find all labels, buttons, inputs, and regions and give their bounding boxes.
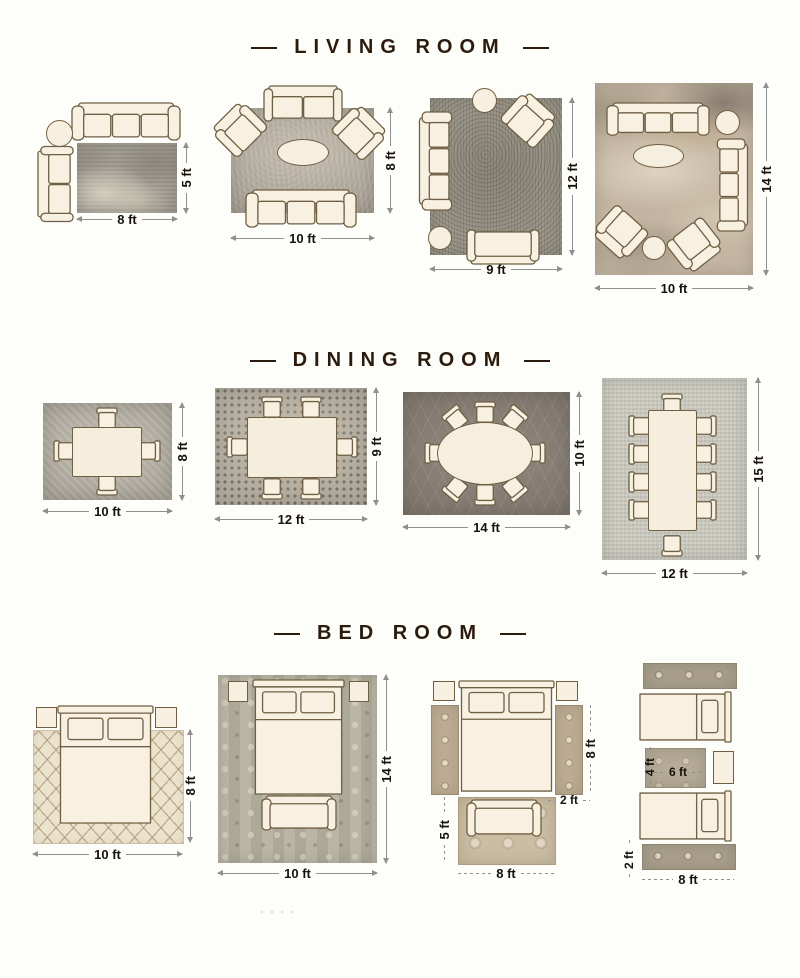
living-room-title: LIVING ROOM: [0, 36, 800, 59]
dining-chair-icon: [694, 499, 716, 521]
dining-chair-icon: [227, 436, 249, 458]
sofa-body: [419, 112, 452, 210]
sofa-body: [716, 139, 747, 231]
bed-room-title: BED ROOM: [0, 622, 800, 645]
bench-icon: [467, 229, 539, 264]
dimension-height: 14 ft: [758, 83, 774, 275]
nightstand-icon: [155, 707, 177, 728]
title-dash: [274, 633, 300, 635]
dimension-height: 12 ft: [564, 98, 580, 255]
bench-icon: [467, 800, 541, 837]
runner-rug-8x2: [643, 663, 737, 689]
dining-chair-icon: [300, 477, 322, 499]
dining-table-icon: [72, 427, 142, 477]
dining-chair-icon: [694, 471, 716, 493]
dining-chair-icon: [261, 397, 283, 419]
title-dash: [500, 633, 526, 635]
section-title-text: BED ROOM: [317, 622, 483, 645]
title-dash: [524, 360, 550, 362]
runner-rug-8x2: [642, 844, 736, 870]
sofa-icon: [607, 103, 709, 136]
dimension-width: 9 ft: [430, 262, 562, 277]
dimension-height: 8 ft: [174, 403, 190, 500]
twin-bed-icon: [640, 791, 731, 841]
bed-icon: [58, 706, 153, 824]
section-title-text: LIVING ROOM: [294, 36, 505, 59]
title-dash: [523, 47, 549, 49]
dimension-width: 10 ft: [231, 231, 374, 246]
dimension-runner-length: 8 ft: [582, 705, 598, 793]
dimension-foot-height: 5 ft: [436, 797, 452, 863]
dining-chair-icon: [261, 477, 283, 499]
sofa-icon: [72, 103, 180, 141]
dining-chair-icon: [474, 483, 496, 505]
dimension-height: 10 ft: [571, 392, 587, 515]
loveseat-body: [38, 146, 74, 221]
ottoman-icon: [642, 236, 666, 260]
nightstand-icon: [556, 681, 578, 701]
dimension-width: 10 ft: [218, 866, 377, 881]
sofa-icon: [264, 86, 342, 122]
sofa-icon: [716, 139, 747, 231]
rug-size-guide: LIVING ROOM DINING ROOM BED ROOM 8 ft 5 …: [0, 0, 800, 978]
dimension-width: 14 ft: [403, 520, 570, 535]
dimension-width: 12 ft: [602, 566, 747, 581]
dining-table-icon: [247, 417, 337, 478]
dimension-between-width: 6 ft: [654, 765, 702, 779]
title-dash: [251, 47, 277, 49]
dimension-foot-width: 8 ft: [458, 866, 554, 881]
dimension-runner-width: 2 ft: [548, 793, 590, 807]
dining-table-icon: [648, 410, 697, 531]
dimension-height: 5 ft: [178, 143, 194, 213]
twin-bed-icon: [640, 692, 731, 742]
dimension-width: 10 ft: [33, 847, 182, 862]
dining-chair-icon: [300, 397, 322, 419]
side-table-icon: [46, 120, 73, 147]
coffee-table-icon: [277, 139, 329, 166]
sofa-icon: [419, 112, 452, 210]
ottoman-icon: [428, 226, 452, 250]
dimension-width: 10 ft: [595, 281, 753, 296]
dimension-height: 15 ft: [750, 378, 766, 560]
dimension-height: 9 ft: [368, 388, 384, 505]
dimension-runner-width: 2 ft: [621, 840, 637, 871]
living-rug-8x5: [77, 143, 177, 213]
nightstand-icon: [36, 707, 57, 728]
watermark-dots: [258, 908, 298, 916]
dining-chair-icon: [474, 402, 496, 424]
dining-chair-icon: [694, 415, 716, 437]
dimension-runner-length: 8 ft: [642, 872, 734, 887]
side-table-icon: [715, 110, 740, 135]
nightstand-icon: [349, 681, 369, 702]
nightstand-icon: [228, 681, 248, 702]
dimension-height: 14 ft: [378, 675, 394, 863]
dimension-width: 8 ft: [77, 212, 177, 227]
nightstand-icon: [433, 681, 455, 701]
side-table-icon: [472, 88, 497, 113]
dimension-width: 12 ft: [215, 512, 367, 527]
runner-rug-2x8: [555, 705, 583, 795]
dining-table-icon: [437, 422, 533, 485]
bench-icon: [262, 796, 336, 831]
dining-room-title: DINING ROOM: [0, 349, 800, 372]
bed-icon: [253, 680, 344, 795]
dining-chair-icon: [694, 443, 716, 465]
sofa-icon: [246, 190, 356, 228]
nightstand-icon: [713, 751, 734, 784]
runner-rug-2x8: [431, 705, 459, 795]
dimension-width: 10 ft: [43, 504, 172, 519]
section-title-text: DINING ROOM: [293, 349, 508, 372]
loveseat-icon: [38, 146, 74, 221]
bed-icon: [459, 681, 554, 792]
dining-chair-icon: [661, 534, 683, 556]
dimension-height: 8 ft: [182, 730, 198, 842]
coffee-table-icon: [633, 144, 684, 168]
dimension-height: 8 ft: [382, 108, 398, 213]
title-dash: [250, 360, 276, 362]
dining-chair-icon: [335, 436, 357, 458]
